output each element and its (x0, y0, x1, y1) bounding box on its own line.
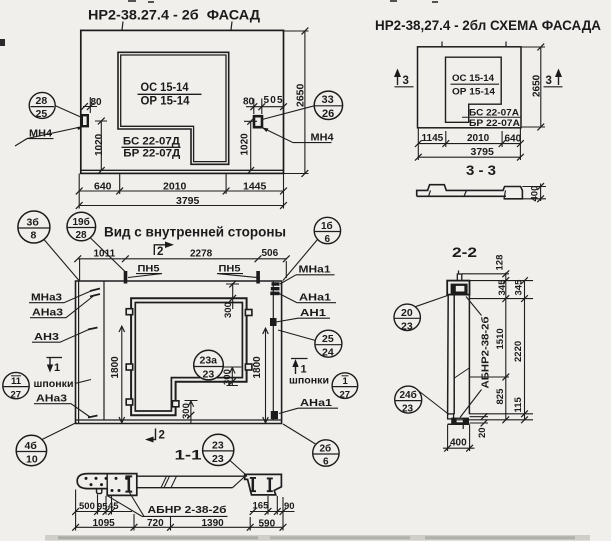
svg-text:АБНР2-38-2б: АБНР2-38-2б (480, 316, 492, 389)
svg-text:1095: 1095 (93, 518, 116, 529)
svg-text:АНа1: АНа1 (300, 398, 333, 409)
svg-text:3: 3 (403, 75, 409, 87)
svg-text:1020: 1020 (240, 133, 251, 156)
svg-text:95: 95 (97, 502, 108, 513)
svg-text:БР 22-07А: БР 22-07А (469, 118, 521, 128)
svg-text:25: 25 (322, 333, 334, 345)
svg-text:8: 8 (31, 230, 37, 242)
svg-text:НР2-38,27.4 - 2бл СХЕМА ФАСАДА: НР2-38,27.4 - 2бл СХЕМА ФАСАДА (375, 18, 601, 33)
svg-text:ПН5: ПН5 (219, 264, 242, 275)
svg-text:90: 90 (284, 501, 295, 512)
svg-text:ОР 15-14: ОР 15-14 (141, 96, 191, 108)
svg-text:2б: 2б (320, 443, 332, 455)
svg-text:шпонки: шпонки (34, 378, 74, 390)
svg-text:23: 23 (212, 453, 224, 465)
svg-text:3: 3 (546, 75, 552, 87)
svg-text:БС 22-07Д: БС 22-07Д (123, 136, 180, 148)
svg-text:6: 6 (325, 234, 331, 245)
svg-text:1445: 1445 (243, 181, 267, 193)
svg-text:23: 23 (401, 320, 413, 332)
svg-text:6: 6 (323, 457, 329, 468)
svg-text:400: 400 (530, 186, 541, 202)
svg-text:590: 590 (259, 519, 276, 530)
svg-text:115: 115 (513, 396, 524, 412)
svg-text:128: 128 (495, 255, 506, 271)
svg-text:19б: 19б (73, 216, 90, 228)
svg-text:АН1: АН1 (300, 308, 327, 319)
svg-text:20: 20 (401, 307, 413, 319)
svg-text:28: 28 (76, 230, 88, 241)
svg-text:1800: 1800 (252, 356, 263, 379)
svg-text:3 - 3: 3 - 3 (466, 162, 496, 178)
svg-text:1020: 1020 (94, 133, 105, 156)
svg-text:400: 400 (450, 438, 467, 449)
svg-text:2220: 2220 (513, 341, 524, 362)
svg-text:27: 27 (340, 390, 351, 401)
svg-text:25: 25 (36, 108, 48, 120)
svg-text:ОР 15-14: ОР 15-14 (452, 87, 496, 98)
svg-text:345: 345 (497, 279, 508, 296)
svg-text:300: 300 (222, 369, 233, 385)
svg-text:28: 28 (36, 95, 48, 107)
svg-text:БС 22-07А: БС 22-07А (469, 108, 520, 118)
svg-text:ОС 15-14: ОС 15-14 (452, 73, 495, 84)
svg-text:20: 20 (477, 427, 488, 438)
svg-text:3б: 3б (27, 217, 40, 229)
svg-text:24б: 24б (400, 389, 417, 401)
svg-text:640: 640 (94, 181, 112, 193)
svg-text:80: 80 (243, 97, 255, 108)
svg-text:АН3: АН3 (34, 332, 60, 343)
svg-text:11: 11 (11, 376, 22, 387)
svg-text:2650: 2650 (532, 74, 543, 97)
svg-text:33: 33 (322, 94, 334, 106)
svg-text:МНа1: МНа1 (299, 265, 332, 276)
svg-text:1б: 1б (321, 220, 333, 232)
svg-text:шпонки: шпонки (289, 375, 329, 387)
svg-text:АБНР 2-38-2б: АБНР 2-38-2б (148, 504, 228, 516)
svg-text:23: 23 (203, 369, 215, 381)
svg-text:МН4: МН4 (311, 132, 334, 144)
svg-text:2278: 2278 (190, 249, 213, 260)
svg-text:Вид с внутренней стороны: Вид с внутренней стороны (104, 225, 286, 240)
svg-text:НР2-38.27.4 - 2б ФАСАД: НР2-38.27.4 - 2б ФАСАД (88, 8, 260, 23)
svg-text:505: 505 (264, 95, 283, 106)
svg-text:БР 22-07Д: БР 22-07Д (123, 148, 180, 160)
svg-text:1510: 1510 (495, 328, 506, 349)
svg-text:4б: 4б (25, 440, 38, 452)
svg-text:640: 640 (505, 134, 522, 145)
svg-text:27: 27 (11, 390, 22, 401)
svg-text:23: 23 (402, 404, 414, 415)
svg-text:165: 165 (253, 501, 270, 512)
svg-text:2: 2 (159, 430, 165, 442)
svg-text:ПН5: ПН5 (138, 264, 161, 275)
svg-text:1390: 1390 (202, 518, 225, 529)
svg-text:10: 10 (26, 454, 38, 466)
svg-text:45: 45 (108, 501, 119, 512)
svg-text:1145: 1145 (422, 133, 444, 144)
svg-text:825: 825 (495, 388, 506, 405)
svg-text:2: 2 (157, 246, 163, 258)
svg-text:2-2: 2-2 (452, 244, 477, 260)
svg-text:506: 506 (262, 248, 279, 259)
svg-text:АНа3: АНа3 (36, 394, 68, 405)
svg-text:300: 300 (181, 403, 192, 419)
svg-text:2010: 2010 (163, 181, 187, 193)
svg-text:3795: 3795 (176, 195, 200, 207)
svg-text:1011: 1011 (94, 249, 116, 260)
svg-text:3795: 3795 (471, 146, 495, 158)
svg-text:АНа1: АНа1 (299, 293, 332, 304)
svg-text:АНа3: АНа3 (32, 308, 64, 319)
svg-text:26: 26 (322, 108, 334, 120)
svg-text:23: 23 (212, 440, 224, 452)
svg-text:1: 1 (343, 376, 349, 387)
svg-text:МНа3: МНа3 (31, 293, 62, 304)
svg-text:24: 24 (322, 347, 334, 359)
svg-text:2010: 2010 (467, 133, 490, 144)
svg-text:2650: 2650 (295, 83, 307, 107)
svg-text:ОС 15-14: ОС 15-14 (141, 82, 190, 94)
svg-text:1: 1 (54, 362, 60, 374)
svg-text:1800: 1800 (110, 356, 121, 379)
svg-text:23а: 23а (200, 355, 218, 367)
svg-text:720: 720 (147, 518, 164, 529)
svg-text:300: 300 (223, 302, 234, 318)
svg-text:345: 345 (514, 279, 525, 296)
svg-text:1-1: 1-1 (175, 447, 202, 463)
svg-text:500: 500 (79, 501, 95, 512)
